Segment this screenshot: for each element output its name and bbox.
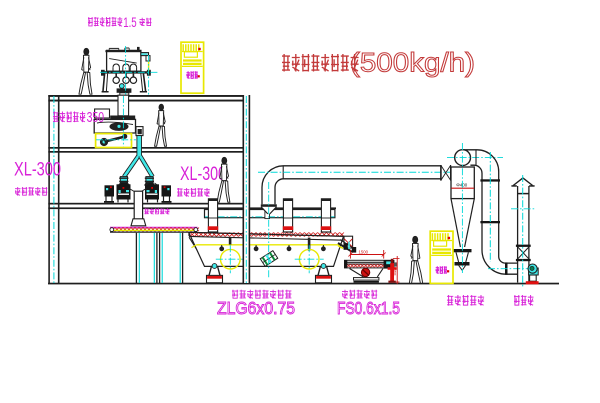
svg-text:ZLG6x0.75: ZLG6x0.75 <box>217 298 295 318</box>
svg-text:1.5: 1.5 <box>123 15 137 30</box>
svg-text:350: 350 <box>87 110 105 126</box>
svg-text:XL-300: XL-300 <box>180 164 226 185</box>
svg-text:FS0.6x1.5: FS0.6x1.5 <box>337 298 400 318</box>
svg-text:(500kg/h): (500kg/h) <box>350 48 475 78</box>
svg-text:XL-300: XL-300 <box>14 160 61 181</box>
svg-text:1500: 1500 <box>359 249 369 254</box>
